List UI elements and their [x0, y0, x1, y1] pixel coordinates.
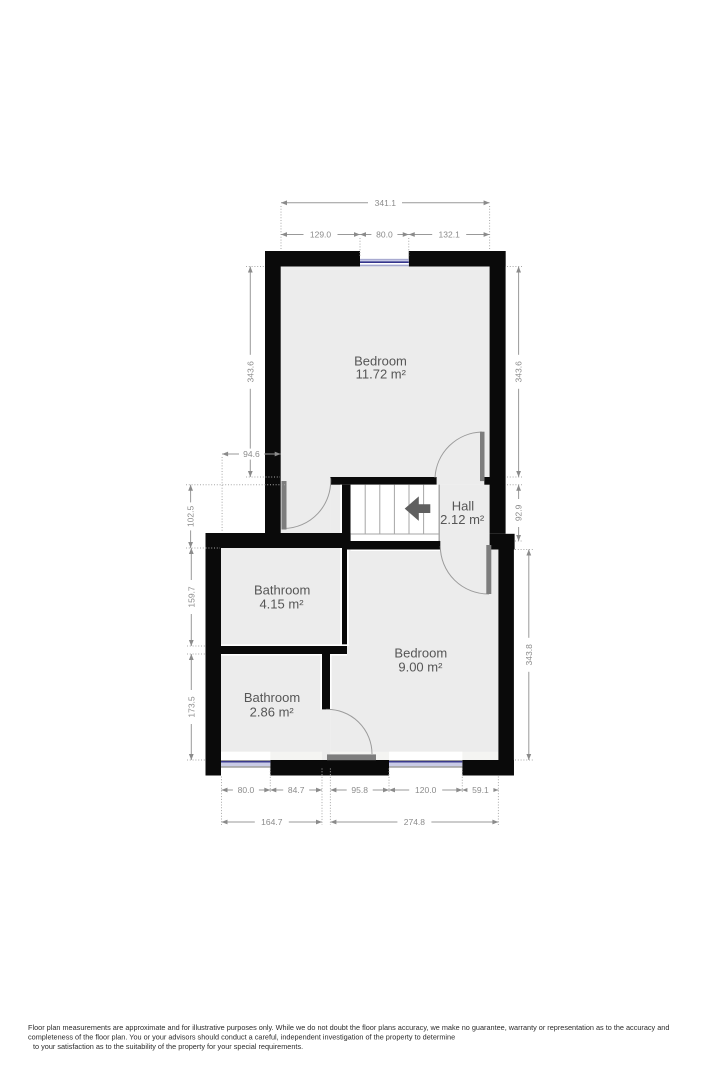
svg-text:343.6: 343.6	[245, 361, 255, 383]
svg-text:4.15 m²: 4.15 m²	[259, 596, 304, 611]
svg-text:59.1: 59.1	[472, 785, 489, 795]
svg-text:11.72 m²: 11.72 m²	[356, 367, 407, 382]
svg-text:129.0: 129.0	[310, 230, 332, 240]
svg-text:164.7: 164.7	[261, 817, 283, 827]
svg-text:343.6: 343.6	[514, 361, 524, 383]
svg-text:173.5: 173.5	[186, 696, 196, 718]
svg-text:159.7: 159.7	[186, 586, 196, 608]
svg-text:Bathroom: Bathroom	[244, 690, 300, 705]
svg-text:274.8: 274.8	[404, 817, 426, 827]
svg-text:120.0: 120.0	[415, 785, 437, 795]
svg-text:to your satisfaction as to the: to your satisfaction as to the suitabili…	[33, 1042, 303, 1051]
svg-text:102.5: 102.5	[186, 505, 196, 527]
svg-text:80.0: 80.0	[238, 785, 255, 795]
svg-text:Floor plan measurements are ap: Floor plan measurements are approximate …	[28, 1023, 669, 1032]
svg-text:343.8: 343.8	[524, 644, 534, 666]
svg-text:84.7: 84.7	[288, 785, 305, 795]
svg-text:132.1: 132.1	[439, 230, 461, 240]
svg-text:80.0: 80.0	[376, 230, 393, 240]
svg-text:completeness of the floor plan: completeness of the floor plan. You or y…	[28, 1032, 455, 1041]
svg-text:Bedroom: Bedroom	[394, 645, 447, 660]
svg-text:2.86 m²: 2.86 m²	[250, 704, 295, 719]
svg-text:95.8: 95.8	[351, 785, 368, 795]
svg-text:341.1: 341.1	[375, 198, 397, 208]
svg-text:Bathroom: Bathroom	[254, 582, 310, 597]
svg-text:9.00 m²: 9.00 m²	[398, 659, 443, 674]
svg-text:2.12 m²: 2.12 m²	[440, 512, 485, 527]
svg-text:94.6: 94.6	[243, 449, 260, 459]
svg-text:92.9: 92.9	[514, 504, 524, 521]
